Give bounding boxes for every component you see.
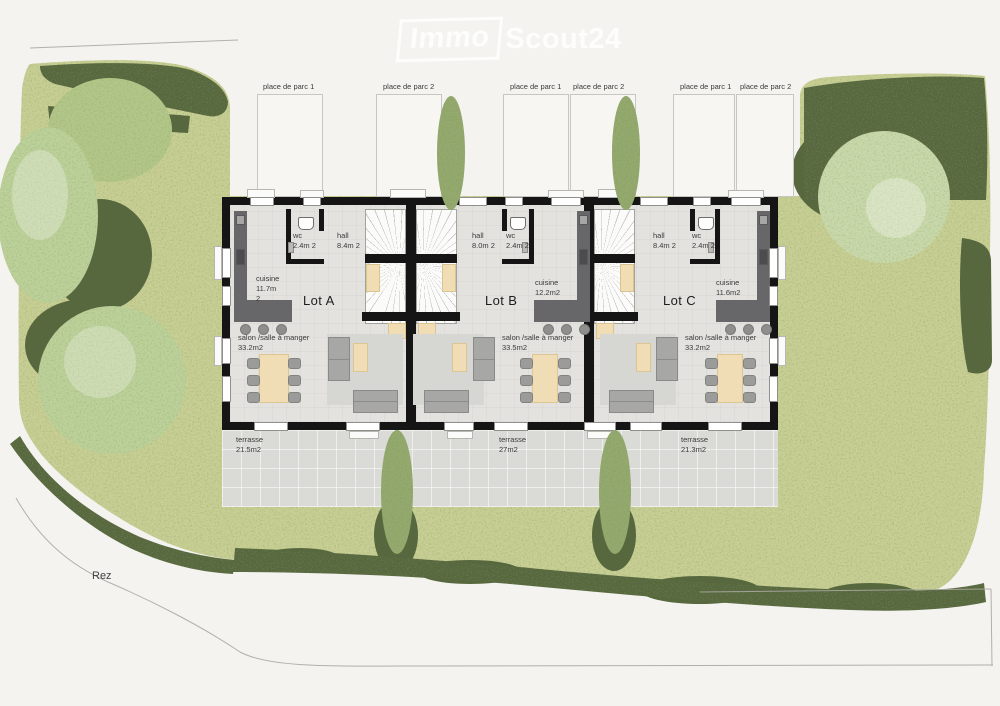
wc-wall: [502, 209, 507, 231]
coffee-table: [452, 343, 467, 372]
chair: [520, 375, 533, 386]
window-opening: [630, 422, 662, 431]
parking-label: place de parc 1: [263, 82, 314, 92]
chair: [247, 358, 260, 369]
kitchen-sink: [759, 215, 768, 225]
chair: [705, 375, 718, 386]
kitchen-island: [716, 300, 770, 322]
chair: [520, 392, 533, 403]
chair: [288, 358, 301, 369]
chair: [558, 392, 571, 403]
wc-wall: [286, 259, 324, 264]
window-opening: [254, 422, 288, 431]
chair: [743, 358, 756, 369]
door-opening: [640, 197, 668, 206]
window-opening: [505, 197, 523, 206]
chair: [247, 375, 260, 386]
window-opening: [769, 248, 778, 278]
window-opening: [769, 286, 778, 306]
chair: [558, 375, 571, 386]
room-label-cuisine: cuisine 11.6m2: [716, 278, 740, 298]
door-opening: [444, 422, 474, 431]
window-sill: [778, 336, 786, 366]
window-opening: [769, 338, 778, 364]
room-label-wc: wc 2.4m 2: [293, 231, 316, 251]
stair-wall: [416, 254, 457, 263]
parking-label: place de parc 2: [740, 82, 791, 92]
chair: [558, 358, 571, 369]
kitchen-island: [534, 300, 590, 322]
closet: [620, 264, 634, 292]
closet: [366, 264, 380, 292]
kitchen-sink: [579, 215, 588, 225]
room-label-salon: salon /salle à manger 33.2m2: [685, 333, 756, 353]
terrace-step: [349, 431, 379, 439]
door-opening: [459, 197, 487, 206]
chair: [247, 392, 260, 403]
chair: [288, 375, 301, 386]
room-label-terrasse: terrasse 21.5m2: [236, 435, 263, 455]
stove: [759, 249, 768, 265]
room-label-wc: wc 2.4m 2: [506, 231, 529, 251]
toilet: [698, 217, 714, 230]
wc-wall: [319, 209, 324, 231]
chair: [743, 375, 756, 386]
bar-stool: [761, 324, 772, 335]
room-label-hall: hall 8.4m 2: [653, 231, 676, 251]
door-opening: [584, 422, 616, 431]
chair: [520, 358, 533, 369]
entry-porch: [390, 189, 426, 198]
window-opening: [693, 197, 711, 206]
wc-wall: [690, 259, 720, 264]
lot-name: Lot A: [303, 293, 335, 308]
watermark-scout24: Scout24: [505, 23, 621, 56]
site-plan-page: place de parc 1 place de parc 2 place de…: [0, 0, 1000, 706]
stove: [236, 249, 245, 265]
window-opening: [303, 197, 321, 206]
sofa: [609, 390, 654, 413]
window-sill: [778, 246, 786, 280]
kitchen-island: [234, 300, 292, 322]
parking-label: place de parc 1: [510, 82, 561, 92]
window-opening: [708, 422, 742, 431]
stair-wall: [594, 254, 635, 263]
wc-wall: [690, 209, 695, 231]
watermark-immo: Immo: [408, 21, 491, 55]
sofa: [328, 337, 350, 381]
parking-label: place de parc 2: [383, 82, 434, 92]
parking-stall: [736, 94, 794, 197]
window-opening: [222, 286, 231, 306]
sofa: [656, 337, 678, 381]
parking-stall: [503, 94, 569, 197]
stair-wall: [365, 254, 406, 263]
wc-wall: [529, 209, 534, 264]
window-opening: [731, 197, 761, 206]
room-label-terrasse: terrasse 21.3m2: [681, 435, 708, 455]
room-label-cuisine: cuisine 11.7m 2: [256, 274, 279, 303]
window-opening: [551, 197, 581, 206]
terrace-step: [447, 431, 473, 439]
closet: [442, 264, 456, 292]
window-sill: [214, 246, 222, 280]
sofa: [353, 390, 398, 413]
dining-table: [532, 354, 558, 403]
immoscout24-watermark: Immo Scout24: [398, 18, 622, 61]
floor-level-label: Rez: [92, 570, 112, 582]
room-label-cuisine: cuisine 12.2m2: [535, 278, 560, 298]
dining-table: [259, 354, 289, 403]
chair: [288, 392, 301, 403]
wc-wall: [715, 209, 720, 264]
stair-wall: [592, 312, 638, 321]
sofa: [424, 390, 469, 413]
watermark-flag: Immo: [396, 17, 504, 63]
wc-wall: [502, 259, 534, 264]
parking-label: place de parc 1: [680, 82, 731, 92]
sofa: [473, 337, 495, 381]
lot-name: Lot B: [485, 293, 517, 308]
lot-name: Lot C: [663, 293, 696, 308]
room-label-terrasse: terrasse 27m2: [499, 435, 526, 455]
parking-stall: [673, 94, 735, 197]
parking-stall: [570, 94, 636, 197]
parking-stall: [376, 94, 442, 197]
room-label-hall: hall 8.0m 2: [472, 231, 495, 251]
window-sill: [214, 336, 222, 366]
chair: [743, 392, 756, 403]
chair: [705, 358, 718, 369]
room-label-hall: hall 8.4m 2: [337, 231, 360, 251]
room-label-salon: salon /salle à manger 33.5m2: [502, 333, 573, 353]
window-opening: [494, 422, 528, 431]
room-label-wc: wc 2.4m 2: [692, 231, 715, 251]
entry-porch: [598, 189, 628, 198]
window-opening: [769, 376, 778, 402]
bar-stool: [579, 324, 590, 335]
parking-stall: [257, 94, 323, 197]
toilet: [510, 217, 526, 230]
window-opening: [222, 248, 231, 278]
door-opening: [250, 197, 274, 206]
window-opening: [222, 338, 231, 364]
window-opening: [222, 376, 231, 402]
stair-wall: [414, 312, 460, 321]
dining-table: [717, 354, 743, 403]
room-label-salon: salon /salle à manger 33.2m2: [238, 333, 309, 353]
chair: [705, 392, 718, 403]
door-opening: [346, 422, 380, 431]
wc-wall: [286, 209, 291, 264]
parking-label: place de parc 2: [573, 82, 624, 92]
kitchen-sink: [236, 215, 245, 225]
toilet: [298, 217, 314, 230]
coffee-table: [636, 343, 651, 372]
stove: [579, 249, 588, 265]
stair-wall: [362, 312, 408, 321]
coffee-table: [353, 343, 368, 372]
floor-plan: place de parc 1 place de parc 2 place de…: [0, 0, 1000, 706]
terrace-step: [587, 431, 615, 439]
